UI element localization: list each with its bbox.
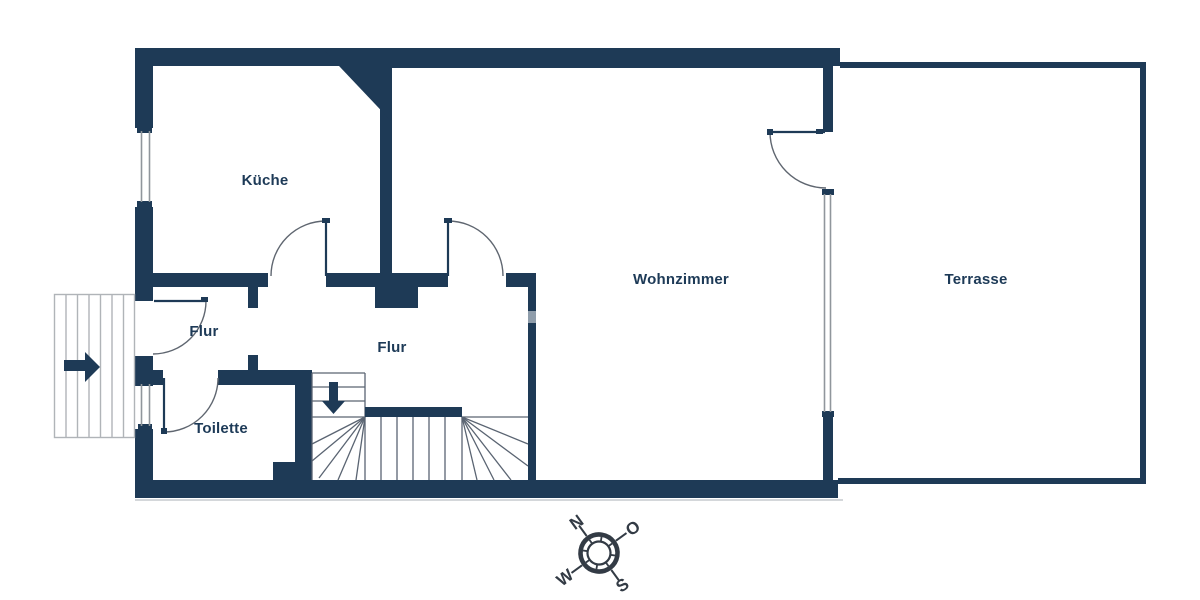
hallway-partition-stub-upper xyxy=(248,287,258,308)
kitchen-window xyxy=(142,131,150,202)
livingroom-window xyxy=(825,194,831,412)
compass-east: O xyxy=(622,517,644,540)
terrace-door xyxy=(767,129,826,188)
toilet-east-wall xyxy=(295,385,312,462)
livingroom-south-wall-a xyxy=(392,273,448,287)
compass-south: S xyxy=(612,574,632,596)
hallway-east-wall xyxy=(528,273,536,480)
compass-north: N xyxy=(566,511,587,534)
right-wall-top-stub xyxy=(823,62,833,132)
right-wall-bottom-stub xyxy=(823,416,833,480)
interior-staircase xyxy=(312,373,528,480)
left-wall-mid xyxy=(135,207,153,301)
compass-rose-icon: N O S W xyxy=(531,486,668,600)
bottom-wall xyxy=(135,480,838,498)
toilet-north-wall-b xyxy=(218,370,312,385)
label-terrace: Terrasse xyxy=(944,271,1007,288)
left-wall-upper xyxy=(135,48,153,128)
floor-plan-drawing: Küche Wohnzimmer Terrasse Flur Flur Toil… xyxy=(0,0,1200,600)
livingroom-beam-line xyxy=(392,65,826,68)
toilet-window xyxy=(142,384,150,426)
toilet-corner-block xyxy=(273,462,312,480)
watermark xyxy=(520,311,540,323)
livingroom-door xyxy=(444,218,503,276)
stair-winder-right xyxy=(462,417,528,480)
stair-rail xyxy=(365,407,462,417)
label-kitchen: Küche xyxy=(242,172,289,189)
compass-west: W xyxy=(553,565,578,590)
kitchen-south-wall-b xyxy=(326,273,380,287)
interior-walls xyxy=(153,48,536,480)
label-toilet: Toilette xyxy=(194,420,248,437)
stair-winder-left xyxy=(312,417,365,480)
kitchen-south-wall-a xyxy=(153,273,268,287)
chimney-block xyxy=(375,287,418,308)
compass-spokes xyxy=(576,530,621,575)
entry-direction-arrow-icon xyxy=(64,352,100,382)
label-hallway-entry: Flur xyxy=(189,323,218,340)
exterior-staircase xyxy=(55,295,135,438)
stair-treads xyxy=(381,417,528,480)
kitchen-door xyxy=(271,218,330,276)
top-wall xyxy=(135,48,840,66)
toilet-north-wall-a xyxy=(153,370,163,385)
label-hallway-main: Flur xyxy=(377,339,406,356)
floor-plan-page: Küche Wohnzimmer Terrasse Flur Flur Toil… xyxy=(0,0,1200,600)
shadow-line xyxy=(135,499,843,501)
label-living-room: Wohnzimmer xyxy=(633,271,729,288)
